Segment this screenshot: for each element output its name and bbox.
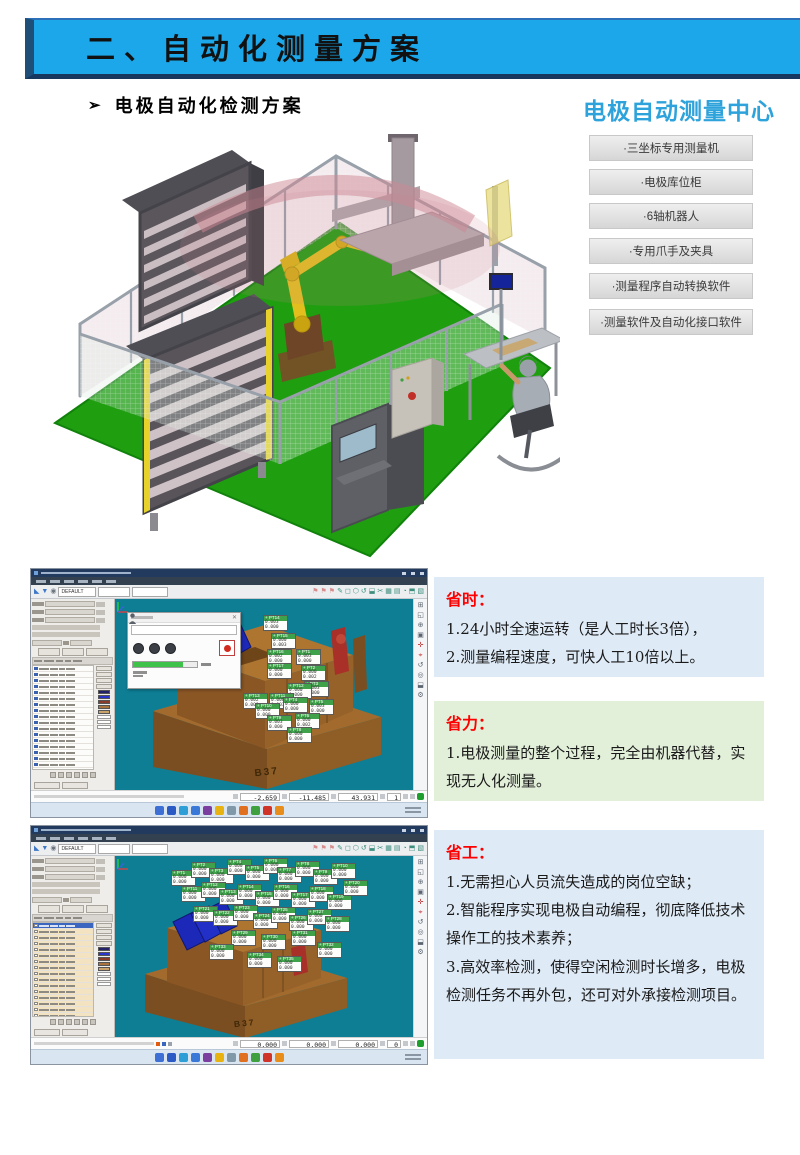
record-button[interactable] — [219, 640, 235, 656]
rail-field[interactable] — [97, 715, 111, 719]
panel-dropdown[interactable] — [45, 866, 95, 872]
panel-tool-icon[interactable] — [74, 772, 80, 778]
ui-bar — [50, 1009, 58, 1011]
axis-triad-icon — [115, 856, 131, 872]
ui-bar — [50, 722, 58, 724]
benefit-box-time: 省时： 1.24小时全速运转（是人工时长3倍）， 2.测量编程速度，可快人工10… — [434, 577, 764, 677]
row-checkbox[interactable] — [34, 936, 38, 940]
color-swatch[interactable] — [98, 710, 110, 714]
ui-bar — [66, 704, 75, 706]
row-checkbox[interactable] — [34, 1008, 38, 1012]
panel-dropdown[interactable] — [45, 874, 95, 880]
window-titlebar[interactable] — [31, 826, 427, 834]
status-mini-icon[interactable] — [162, 1042, 166, 1046]
coord-z: 43.931 — [338, 793, 378, 801]
flag-value: 0.003 — [272, 644, 295, 649]
toolbar-icon[interactable]: ▧ — [417, 845, 424, 852]
panel-tab[interactable] — [62, 782, 88, 789]
taskbar-app-icon[interactable] — [239, 1053, 248, 1062]
rail-button[interactable] — [96, 678, 112, 683]
ui-bar — [96, 602, 105, 607]
ui-bar — [59, 704, 65, 706]
taskbar-app-icon[interactable] — [215, 806, 224, 815]
color-swatch[interactable] — [98, 952, 110, 956]
rail-button[interactable] — [96, 929, 112, 934]
taskbar-app-icon[interactable] — [155, 1053, 164, 1062]
toolbar-icon[interactable]: ⚑ — [321, 588, 327, 595]
alarm-bell-icon[interactable] — [417, 793, 424, 800]
rail-button[interactable] — [96, 935, 112, 940]
flag-value: 0.000 — [172, 881, 195, 886]
ui-bar — [96, 867, 105, 872]
coord-y: 0.000 — [289, 1040, 329, 1048]
flag-value: 0.000 — [268, 674, 291, 679]
taskbar-app-icon[interactable] — [179, 1053, 188, 1062]
viewport-3d[interactable]: B37 + PT140.0030.000+ PT150.0000.003+ PT… — [115, 599, 413, 790]
maximize-icon[interactable] — [411, 572, 415, 575]
taskbar-app-icon[interactable] — [251, 806, 260, 815]
panel-dropdown[interactable] — [45, 609, 95, 615]
safety-zone-arc — [180, 185, 500, 306]
view-tool-icon[interactable]: ▣ — [417, 632, 424, 639]
taskbar-app-icon[interactable] — [203, 1053, 212, 1062]
feature-icon — [34, 691, 38, 695]
ui-bar — [39, 961, 49, 963]
ui-bar — [32, 632, 100, 637]
table-area — [32, 922, 113, 1017]
toolbar-icon[interactable]: ✎ — [337, 588, 343, 595]
row-checkbox[interactable] — [34, 924, 38, 928]
taskbar-app-icon[interactable] — [239, 806, 248, 815]
row-checkbox[interactable] — [34, 948, 38, 952]
ui-bar — [39, 937, 49, 939]
color-swatch[interactable] — [98, 705, 110, 709]
color-swatch[interactable] — [98, 962, 110, 966]
toolbar-icon[interactable]: ⬓ — [369, 588, 376, 595]
ui-bar — [32, 625, 100, 630]
flag-value: 0.000 — [344, 891, 367, 896]
panel-button[interactable] — [86, 905, 108, 913]
probe-combo[interactable]: DEFAULT — [58, 844, 96, 854]
toolbar-icon[interactable]: ◣ — [34, 845, 39, 852]
view-tool-icon[interactable]: ◎ — [417, 672, 423, 679]
window-title-text — [41, 572, 131, 575]
filter-input[interactable] — [70, 640, 92, 646]
windows-taskbar[interactable] — [31, 1049, 427, 1064]
panel-tool-icon[interactable] — [50, 772, 56, 778]
toolbar-icon[interactable]: ◣ — [34, 588, 39, 595]
panel-field-row — [32, 600, 113, 608]
benefit-line: 1.24小时全速运转（是人工时长3倍）， — [446, 615, 752, 643]
ui-bar — [59, 1009, 65, 1011]
toolbar-icon[interactable]: ⬒ — [409, 845, 416, 852]
menu-bar[interactable] — [31, 577, 427, 585]
panel-icon-row — [32, 770, 113, 780]
automation-cell-3d-scene — [40, 128, 560, 558]
row-checkbox[interactable] — [34, 978, 38, 982]
search-input[interactable] — [32, 897, 62, 903]
mode-combo[interactable] — [132, 844, 168, 854]
toolbar-icon[interactable]: ✎ — [337, 845, 343, 852]
rail-field[interactable] — [97, 972, 111, 976]
ui-bar — [59, 668, 65, 670]
row-checkbox[interactable] — [34, 966, 38, 970]
view-tool-icon[interactable]: ↺ — [418, 919, 424, 926]
close-icon[interactable] — [420, 572, 424, 575]
measure-flag: + PT290.0000.000 — [231, 930, 256, 946]
ui-bar — [39, 698, 49, 700]
rail-field[interactable] — [97, 725, 111, 729]
ui-bar — [39, 674, 49, 676]
toolbar-icon[interactable]: ▤ — [394, 845, 401, 852]
taskbar-app-icon[interactable] — [179, 806, 188, 815]
ui-bar — [59, 716, 65, 718]
coord-count: 0 — [387, 1040, 401, 1048]
ui-bar — [50, 704, 58, 706]
toolbar-icon[interactable]: ⬓ — [369, 845, 376, 852]
app-icon — [34, 571, 38, 575]
view-tool-icon[interactable]: ⊕ — [418, 622, 424, 629]
maximize-icon[interactable] — [411, 829, 415, 832]
row-checkbox[interactable] — [34, 960, 38, 964]
color-swatch[interactable] — [98, 967, 110, 971]
stop-button[interactable] — [165, 643, 176, 654]
benefit-title: 省工： — [446, 838, 752, 868]
flag-value: 0.002 — [302, 676, 325, 681]
ui-bar — [39, 758, 49, 760]
ui-bar — [59, 686, 65, 688]
ui-bar — [66, 1009, 75, 1011]
feature-table[interactable] — [32, 665, 94, 770]
toolbar-icon[interactable]: ◔ — [403, 845, 407, 852]
arrow-bullet-icon: ➢ — [88, 96, 101, 114]
view-tool-icon[interactable]: ⚙ — [417, 949, 423, 956]
row-checkbox[interactable] — [34, 972, 38, 976]
ui-bar — [66, 943, 75, 945]
view-tool-icon[interactable]: ⬓ — [417, 939, 424, 946]
toolbar-icon[interactable]: ↺ — [361, 588, 367, 595]
panel-tool-icon[interactable] — [82, 1019, 88, 1025]
panel-button[interactable] — [62, 905, 84, 913]
panel-tabs — [32, 1027, 113, 1036]
toolbar-icon[interactable]: ⬡ — [353, 845, 359, 852]
alarm-bell-icon[interactable] — [417, 1040, 424, 1047]
panel-tool-icon[interactable] — [74, 1019, 80, 1025]
view-toolbar[interactable]: ⊞◱⊕▣✛⌖↺◎⬓⚙ — [413, 856, 427, 1037]
panel-search-row — [32, 638, 113, 647]
toolbar-icon[interactable]: ▧ — [417, 588, 424, 595]
system-tray[interactable] — [405, 807, 421, 813]
feature-icon — [34, 751, 38, 755]
system-tray[interactable] — [405, 1054, 421, 1060]
ui-bar — [59, 943, 65, 945]
view-tool-icon[interactable]: ⌖ — [419, 652, 423, 659]
measure-flag: + PT20.0000.002 — [301, 665, 326, 681]
ui-bar — [66, 979, 75, 981]
view-tool-icon[interactable]: ▣ — [417, 889, 424, 896]
ui-bar — [66, 680, 75, 682]
minimize-icon[interactable] — [402, 829, 406, 832]
table-header — [32, 657, 113, 665]
toolbar-icon[interactable]: ⚑ — [312, 845, 318, 852]
view-tool-icon[interactable]: ⌖ — [419, 909, 423, 916]
ui-bar — [50, 973, 58, 975]
view-toolbar[interactable]: ⊞◱⊕▣✛⌖↺◎⬓⚙ — [413, 599, 427, 790]
panel-tool-icon[interactable] — [82, 772, 88, 778]
toolbar-icon[interactable]: ▤ — [394, 588, 401, 595]
viewport-3d[interactable]: B37 + PT10.0000.000+ PT20.0000.000+ PT30… — [115, 856, 413, 1037]
rail-button[interactable] — [96, 684, 112, 689]
view-tool-icon[interactable]: ✛ — [418, 642, 424, 649]
ui-bar — [50, 967, 58, 969]
row-checkbox[interactable] — [34, 990, 38, 994]
feature-icon — [34, 739, 38, 743]
ui-bar — [59, 758, 65, 760]
panel-field-row — [32, 865, 113, 873]
view-tool-icon[interactable]: ◎ — [417, 929, 423, 936]
ui-bar — [32, 610, 44, 614]
panel-button[interactable] — [38, 905, 60, 913]
panel-button[interactable] — [86, 648, 108, 656]
panel-tool-icon[interactable] — [66, 1019, 72, 1025]
minimize-icon[interactable] — [402, 572, 406, 575]
toolbar-icon[interactable]: ✂ — [377, 845, 383, 852]
row-checkbox[interactable] — [34, 942, 38, 946]
coord-y: -11.485 — [289, 793, 329, 801]
dialog-program-field[interactable] — [131, 625, 237, 635]
view-tool-icon[interactable]: ✛ — [418, 899, 424, 906]
ui-bar — [66, 722, 75, 724]
ui-bar — [39, 728, 49, 730]
view-tool-icon[interactable]: ⊕ — [418, 879, 424, 886]
view-tool-icon[interactable]: ⬓ — [417, 682, 424, 689]
rail-button[interactable] — [96, 941, 112, 946]
ui-bar — [39, 692, 49, 694]
status-mini-icon[interactable] — [168, 1042, 172, 1046]
color-swatch[interactable] — [98, 690, 110, 694]
flag-value: 0.000 — [248, 963, 271, 968]
panel-search-row — [32, 895, 113, 904]
ui-bar — [66, 931, 75, 933]
dialog-titlebar[interactable]: ✕ — [128, 613, 240, 623]
color-swatch[interactable] — [98, 695, 110, 699]
ui-bar — [59, 937, 65, 939]
tool-combo[interactable] — [98, 587, 130, 597]
view-tool-icon[interactable]: ◱ — [417, 869, 424, 876]
toolbar-icon[interactable]: ◔ — [403, 588, 407, 595]
taskbar-app-icon[interactable] — [203, 806, 212, 815]
taskbar-app-icon[interactable] — [191, 1053, 200, 1062]
toolbar-icon[interactable]: ⚑ — [329, 588, 335, 595]
flag-value: 0.000 — [326, 927, 349, 932]
benefit-title: 省力： — [446, 709, 752, 739]
row-checkbox[interactable] — [34, 954, 38, 958]
ui-bar — [66, 925, 75, 927]
play-button[interactable] — [133, 643, 144, 654]
taskbar-app-icon[interactable] — [251, 1053, 260, 1062]
row-checkbox[interactable] — [34, 930, 38, 934]
toolbar-icon[interactable]: ▦ — [385, 845, 392, 852]
toolbar-icon[interactable]: ✂ — [377, 588, 383, 595]
measure-flag: + PT200.0000.000 — [343, 880, 368, 896]
ui-bar — [59, 985, 65, 987]
feature-table[interactable] — [32, 922, 94, 1017]
ui-bar — [39, 985, 49, 987]
measure-flag: + PT100.0000.000 — [331, 863, 356, 879]
search-input[interactable] — [32, 640, 62, 646]
toolbar-icon[interactable]: ▦ — [385, 588, 392, 595]
panel-tool-icon[interactable] — [90, 1019, 96, 1025]
ui-bar — [32, 867, 44, 871]
panel-dropdown[interactable] — [45, 601, 95, 607]
slide-title-banner: 二、自动化测量方案 — [25, 18, 800, 79]
probe-combo[interactable]: DEFAULT — [58, 587, 96, 597]
taskbar-app-icon[interactable] — [227, 1053, 236, 1062]
row-checkbox[interactable] — [34, 996, 38, 1000]
execution-dialog[interactable]: ✕ — [127, 612, 241, 689]
ui-bar — [73, 917, 82, 920]
toolbar-icon[interactable]: ⬡ — [353, 588, 359, 595]
feature-icon — [34, 763, 38, 767]
color-swatch[interactable] — [98, 700, 110, 704]
panel-tool-icon[interactable] — [58, 772, 64, 778]
filter-input[interactable] — [70, 897, 92, 903]
toolbar-icon[interactable]: ⬒ — [409, 588, 416, 595]
program-panel[interactable] — [31, 856, 115, 1037]
row-checkbox[interactable] — [34, 1002, 38, 1006]
ui-bar — [66, 764, 75, 766]
view-tool-icon[interactable]: ◱ — [417, 612, 424, 619]
taskbar-app-icon[interactable] — [263, 1053, 272, 1062]
rail-field[interactable] — [97, 720, 111, 724]
panel-button-row — [32, 647, 113, 657]
panel-tab[interactable] — [62, 1029, 88, 1036]
view-tool-icon[interactable]: ⊞ — [418, 859, 424, 866]
ui-bar — [59, 961, 65, 963]
taskbar-app-icon[interactable] — [275, 806, 284, 815]
view-tool-icon[interactable]: ⊞ — [418, 602, 424, 609]
toolbar-icon[interactable]: ◉ — [50, 845, 56, 852]
panel-dropdown[interactable] — [45, 617, 95, 623]
toolbar-icon[interactable]: ◻ — [345, 845, 351, 852]
ui-bar — [39, 764, 49, 766]
toolbar[interactable]: ◣▼◉ DEFAULT ⚑⚑⚑✎◻⬡↺⬓✂▦▤◔⬒▧ — [31, 842, 427, 856]
close-icon[interactable] — [420, 829, 424, 832]
windows-taskbar[interactable] — [31, 802, 427, 817]
toolbar-icon[interactable]: ◻ — [345, 588, 351, 595]
ui-bar — [50, 937, 58, 939]
toolbar-icon[interactable]: ⚑ — [321, 845, 327, 852]
feature-icon — [34, 709, 38, 713]
measure-flag: + PT340.0000.000 — [247, 952, 272, 968]
dialog-close-icon[interactable]: ✕ — [232, 615, 237, 621]
taskbar-app-icon[interactable] — [191, 806, 200, 815]
flag-value: 0.000 — [232, 941, 255, 946]
panel-tab[interactable] — [34, 782, 60, 789]
mode-combo[interactable] — [132, 587, 168, 597]
ui-bar — [50, 931, 58, 933]
rail-button[interactable] — [96, 672, 112, 677]
toolbar-icon[interactable]: ▼ — [41, 845, 48, 852]
toolbar[interactable]: ◣▼◉ DEFAULT ⚑⚑⚑✎◻⬡↺⬓✂▦▤◔⬒▧ — [31, 585, 427, 599]
cmm-software-screenshot-1: ◣▼◉ DEFAULT ⚑⚑⚑✎◻⬡↺⬓✂▦▤◔⬒▧ — [30, 568, 428, 818]
window-title-text — [41, 829, 131, 832]
ui-bar — [59, 967, 65, 969]
rail-field[interactable] — [97, 977, 111, 981]
flag-value: 0.000 — [214, 921, 237, 926]
view-tool-icon[interactable]: ↺ — [418, 662, 424, 669]
panel-tabs — [32, 780, 113, 789]
color-swatch[interactable] — [98, 947, 110, 951]
toolbar-icon[interactable]: ⚑ — [312, 588, 318, 595]
ui-bar — [39, 734, 49, 736]
panel-button[interactable] — [62, 648, 84, 656]
ui-bar — [50, 979, 58, 981]
taskbar-app-icon[interactable] — [155, 806, 164, 815]
pause-button[interactable] — [149, 643, 160, 654]
ui-bar — [32, 882, 100, 887]
ui-bar — [39, 722, 49, 724]
taskbar-app-icon[interactable] — [227, 806, 236, 815]
ui-bar — [50, 686, 58, 688]
taskbar-app-icon[interactable] — [167, 806, 176, 815]
window-titlebar[interactable] — [31, 569, 427, 577]
view-tool-icon[interactable]: ⚙ — [417, 692, 423, 699]
program-panel[interactable] — [31, 599, 115, 790]
ui-bar — [59, 722, 65, 724]
ui-bar — [44, 917, 54, 920]
tool-combo[interactable] — [98, 844, 130, 854]
panel-button[interactable] — [38, 648, 60, 656]
panel-dropdown[interactable] — [45, 858, 95, 864]
panel-tool-icon[interactable] — [58, 1019, 64, 1025]
rail-button[interactable] — [96, 923, 112, 928]
ui-bar — [65, 660, 71, 663]
panel-field-row — [32, 857, 113, 865]
color-swatch[interactable] — [98, 957, 110, 961]
flag-value: 0.000 — [262, 945, 285, 950]
table-header — [32, 914, 113, 922]
panel-tool-icon[interactable] — [66, 772, 72, 778]
toolbar-icon[interactable]: ↺ — [361, 845, 367, 852]
rail-button[interactable] — [96, 666, 112, 671]
toolbar-icon[interactable]: ▼ — [41, 588, 48, 595]
feature-icon — [34, 679, 38, 683]
rail-field[interactable] — [97, 982, 111, 986]
panel-tool-icon[interactable] — [90, 772, 96, 778]
ui-bar — [66, 698, 75, 700]
status-mini-icon[interactable] — [156, 1042, 160, 1046]
taskbar-app-icon[interactable] — [215, 1053, 224, 1062]
ui-bar — [32, 889, 100, 894]
status-text — [34, 795, 184, 798]
status-text — [34, 1042, 154, 1045]
toolbar-icon[interactable]: ⚑ — [329, 845, 335, 852]
menu-bar[interactable] — [31, 834, 427, 842]
ui-bar — [56, 917, 63, 920]
measure-flag: + PT40.0000.000 — [283, 697, 308, 713]
taskbar-app-icon[interactable] — [263, 806, 272, 815]
panel-tool-icon[interactable] — [50, 1019, 56, 1025]
measure-flag: + PT330.0000.000 — [209, 944, 234, 960]
taskbar-app-icon[interactable] — [275, 1053, 284, 1062]
taskbar-app-icon[interactable] — [167, 1053, 176, 1062]
section-heading-text: 电极自动化检测方案 — [115, 92, 304, 118]
panel-tab[interactable] — [34, 1029, 60, 1036]
toolbar-icon[interactable]: ◉ — [50, 588, 56, 595]
benefit-line: 1.电极测量的整个过程，完全由机器代替，实现无人化测量。 — [446, 739, 752, 795]
row-checkbox[interactable] — [34, 984, 38, 988]
